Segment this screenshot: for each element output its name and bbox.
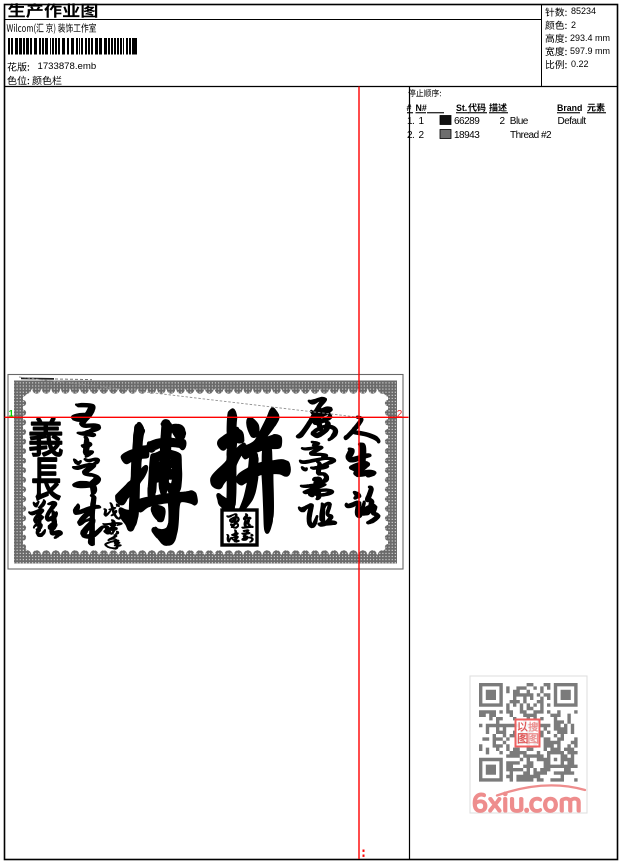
svg-text:2: 2 xyxy=(397,409,403,420)
svg-text:1: 1 xyxy=(9,409,15,420)
